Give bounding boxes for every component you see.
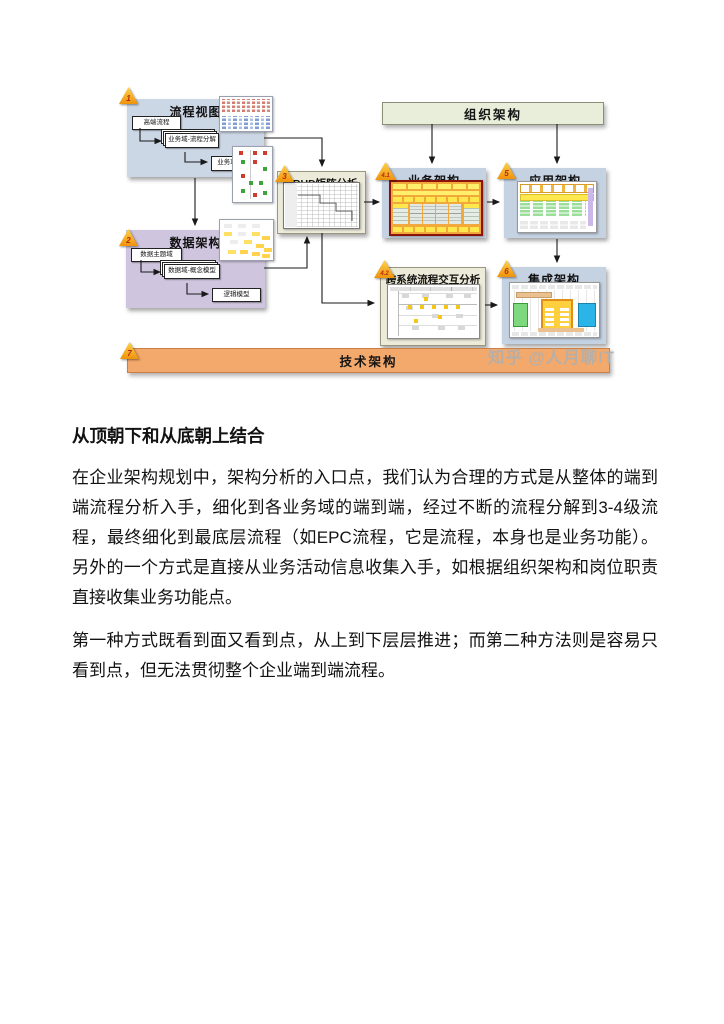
- marker-6-triangle: 6: [497, 260, 516, 277]
- step-domain-process-decompose: 业务域-流程分解: [165, 133, 219, 148]
- int-arch-thumbnail: [509, 282, 600, 338]
- tech-arch-title: 技术架构: [339, 351, 397, 370]
- data-model-thumbnail: [219, 219, 274, 261]
- org-arch-bar: 组织架构: [382, 102, 604, 125]
- marker-4-1-triangle: 4.1: [375, 162, 396, 180]
- step-logical-model: 逻辑模型: [212, 288, 261, 302]
- marker-2-triangle: 2: [119, 229, 138, 246]
- crud-matrix-thumbnail: [283, 182, 360, 229]
- marker-5-triangle: 5: [497, 162, 516, 179]
- crud-step-line: [284, 183, 359, 228]
- article-paragraph-2: 第一种方式既看到面又看到点，从上到下层层推进；而第二种方法则是容易只看到点，但无…: [72, 626, 658, 686]
- step-high-level-process: 高端流程: [132, 116, 181, 130]
- page: 流程视图 组织架构 CRUD矩阵分析 业务架构 应用架构 数据架构 跨系统流程交…: [0, 0, 724, 1024]
- article-heading: 从顶朝下和从底朝上结合: [72, 423, 658, 448]
- article-paragraph-1: 在企业架构规划中，架构分析的入口点，我们认为合理的方式是从整体的端到端流程分析入…: [72, 463, 658, 613]
- step-data-domain-concept-model: 数据域-概念模型: [164, 264, 220, 279]
- process-list-thumbnail: [219, 96, 273, 132]
- app-arch-thumbnail: [517, 181, 597, 233]
- org-arch-title: 组织架构: [464, 104, 522, 123]
- marker-4-2-triangle: 4.2: [374, 260, 395, 278]
- cross-system-swimlane-thumbnail: [387, 284, 480, 339]
- epc-flow-thumbnail: [232, 146, 273, 203]
- marker-7-triangle: 7: [120, 342, 139, 359]
- marker-1-triangle: 1: [119, 87, 138, 104]
- biz-arch-thumbnail: [389, 180, 483, 236]
- article-body: 从顶朝下和从底朝上结合 在企业架构规划中，架构分析的入口点，我们认为合理的方式是…: [72, 423, 658, 699]
- marker-3-triangle: 3: [275, 165, 294, 182]
- zhihu-watermark: 知乎 @人月聊IT: [488, 344, 615, 368]
